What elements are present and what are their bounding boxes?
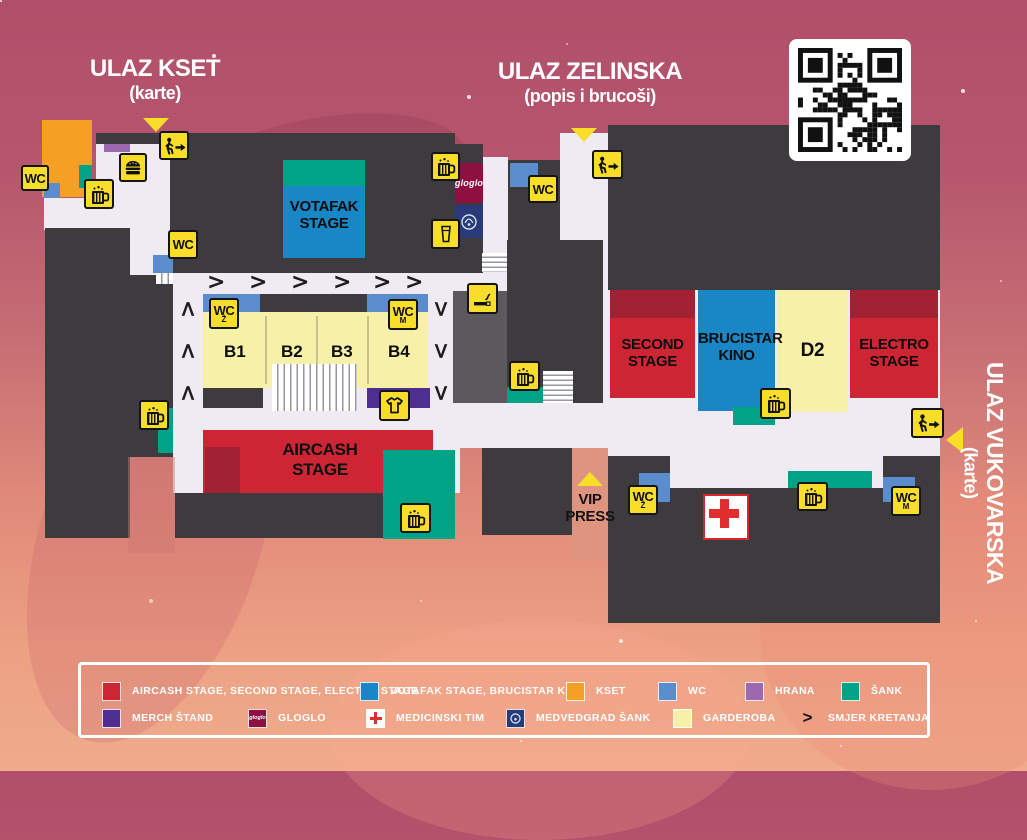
vip-press-label: VIPPRESS [555,492,625,525]
electro-stage-back [850,290,938,318]
direction-arrow: > [249,272,267,294]
direction-arrow: > [207,272,225,294]
votafak-stage-back [283,160,365,186]
hrana-area [104,144,130,152]
legend-item: KSET [566,681,626,701]
exit-walk-icon [159,131,189,160]
entrance-title-zelinska: ULAZ ZELINSKA (popis i brucoši) [480,58,700,108]
legend-item: > SMJER KRETANJA [798,708,929,728]
path-shade [128,457,175,553]
stairs [156,273,173,284]
corridor [788,456,872,471]
aircash-stage-label: AIRCASHSTAGE [230,440,410,479]
entrance-triangle-kset [143,118,169,132]
block-b4-label: B4 [388,342,410,362]
beer-icon [509,361,540,391]
wc-female-icon: WC Ž [209,298,239,329]
wc-male-icon: WC M [388,299,418,330]
electro-stage-label: ELECTROSTAGE [850,336,938,371]
wc-male-icon: WC M [891,486,921,516]
entrance-triangle-zelinska [571,128,597,142]
building [175,493,383,538]
second-stage-back [610,290,695,318]
beer-icon [431,152,460,181]
legend-swatch-kset [566,682,585,701]
legend-swatch-stage-blue [360,682,379,701]
legend-swatch-sank [841,682,860,701]
building-strip [260,294,367,312]
legend-swatch-wc [658,682,677,701]
beer-glass-icon [431,219,460,249]
legend-item: HRANA [745,681,815,701]
legend-item: GARDEROBA [673,708,775,728]
garderoba-divider [265,316,267,384]
direction-arrow: > [429,300,451,318]
d2-label: D2 [777,340,848,362]
corridor [670,456,788,488]
legend-swatch-hrana [745,682,764,701]
legend-swatch-direction: > [798,709,817,728]
legend-item: MEDICINSKI TIM [366,708,484,728]
stairs [482,253,507,272]
legend-swatch-garderoba [673,709,692,728]
stairs [543,371,573,403]
legend-swatch-gloglo: gloglo [248,709,267,728]
building-strip [203,388,263,408]
stairs [272,364,357,411]
block-b1-label: B1 [224,342,246,362]
corridor [455,403,603,448]
direction-arrow: > [178,300,200,318]
beer-icon [84,179,114,209]
beer-icon [139,400,169,430]
legend-swatch-medvedgrad [506,709,525,728]
medvedgrad-logo-icon [459,212,479,232]
direction-arrow: > [333,272,351,294]
star-speckles [0,0,2,2]
beer-icon [760,388,791,419]
food-burger-icon [119,153,147,182]
wc-icon: WC [21,165,49,191]
legend-swatch-medical [366,709,385,728]
qr-code [789,39,911,161]
second-stage-label: SECONDSTAGE [610,336,695,371]
legend-item: WC [658,681,706,701]
beer-icon [400,503,431,533]
block-b2-label: B2 [281,342,303,362]
garderoba-divider [367,316,369,384]
legend-item: MEDVEDGRAD ŠANK [506,708,651,728]
legend-swatch-merch [102,709,121,728]
exit-walk-icon [592,150,623,179]
smoking-icon [467,283,498,314]
votafak-stage-label: VOTAFAKSTAGE [283,198,365,233]
beer-icon [797,482,828,511]
medical-red-cross-icon [703,494,749,540]
wc-icon: WC [168,230,198,259]
exit-walk-icon [911,408,944,438]
direction-arrow: > [373,272,391,294]
entrance-title-kset: ULAZ KSET (karte) [65,55,245,105]
wc-female-icon: WC Ž [628,485,658,515]
building [45,228,130,538]
legend-item: MERCH ŠTAND [102,708,213,728]
direction-arrow: > [178,384,200,402]
legend-box: AIRCASH STAGE, SECOND STAGE, ELECTRO STA… [78,662,930,738]
vip-press-triangle [577,472,603,486]
wc-icon: WC [528,175,558,203]
direction-arrow: > [405,272,423,294]
entrance-title-vukovarska: ULAZ VUKOVARSKA (karte) [952,328,1008,618]
legend-item: ŠANK [841,681,902,701]
legend-item: VOTAFAK STAGE, BRUCISTAR KINO [360,681,585,701]
direction-arrow: > [178,342,200,360]
legend-item: gloglo GLOGLO [248,708,326,728]
direction-arrow: > [429,384,451,402]
merch-tshirt-icon [379,390,410,421]
direction-arrow: > [291,272,309,294]
legend-swatch-stage-red [102,682,121,701]
direction-arrow: > [429,342,451,360]
block-b3-label: B3 [331,342,353,362]
building [96,133,455,144]
brucistar-kino-label: BRUCISTARKINO [698,330,775,365]
